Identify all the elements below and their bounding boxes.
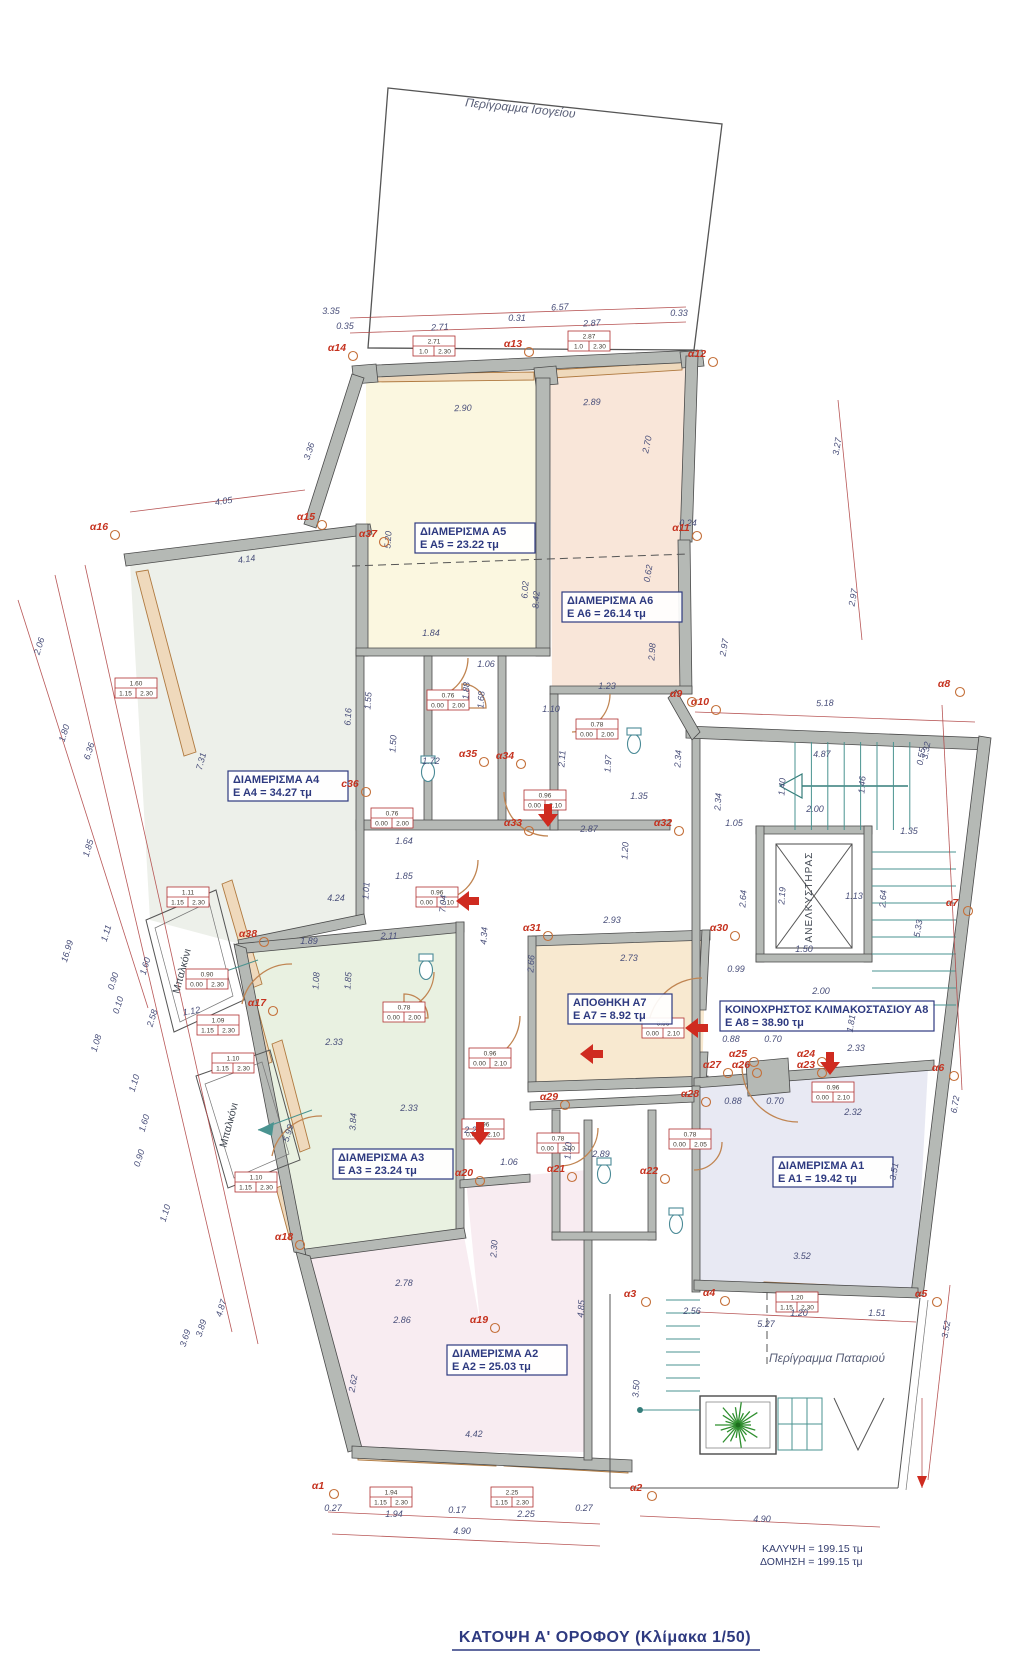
point-marker-label: α25 (729, 1048, 747, 1060)
dimension-text: 2.87 (582, 318, 602, 329)
dimension-text: 2.11 (380, 931, 398, 941)
dimension-text: 0.99 (727, 964, 745, 974)
dimension-text: 4.87 (813, 749, 832, 760)
page-title: ΚΑΤΟΨΗ Α' ΟΡΟΦΟΥ (Κλίμακα 1/50) (459, 1629, 751, 1646)
dimension-text: 2.93 (602, 915, 621, 925)
toilet-icon (627, 728, 641, 754)
dimension-text: 1.08 (89, 1033, 104, 1053)
dimension-text: 1.68 (475, 691, 486, 709)
apartment-name: ΚΟΙΝΟΧΡΗΣΤΟΣ ΚΛΙΜΑΚΟΣΤΑΣΙΟΥ Α8 (725, 1004, 928, 1016)
apartment-name: ΔΙΑΜΕΡΙΣΜΑ Α1 (778, 1160, 864, 1172)
point-marker-label: α29 (540, 1091, 558, 1103)
dimension-text: 2.56 (682, 1306, 701, 1316)
apartment-name: ΔΙΑΜΕΡΙΣΜΑ Α5 (420, 526, 506, 538)
dimension-text: 3.52 (940, 1320, 953, 1339)
spec-sill: 1.15 (171, 900, 184, 907)
point-marker-label: α35 (459, 748, 477, 760)
point-marker-label: α17 (248, 997, 267, 1009)
point-marker-label: α23 (797, 1059, 815, 1071)
room-a6 (550, 358, 690, 688)
dimension-text: 4.90 (753, 1514, 771, 1524)
dimension-text: 2.11 (556, 750, 567, 769)
opening-spec-box: 0.760.002.00 (371, 808, 413, 828)
spec-height: 2.00 (601, 732, 614, 739)
dimension-text: 3.52 (793, 1251, 811, 1261)
apartment-label: ΔΙΑΜΕΡΙΣΜΑ Α3Ε Α3 = 23.24 τμ (333, 1149, 453, 1179)
opening-spec-box: 1.941.152.30 (370, 1487, 412, 1507)
apartment-area: Ε Α8 = 38.90 τμ (725, 1017, 804, 1029)
opening-spec-box: 0.960.002.10 (812, 1082, 854, 1102)
dimension-text: 1.51 (868, 1308, 886, 1318)
point-marker-label: α18 (275, 1231, 293, 1243)
dimension-text: 1.08 (310, 972, 321, 990)
dimension-text: 2.86 (392, 1315, 411, 1325)
point-marker-label: α37 (359, 528, 378, 540)
dimension-text: 1.05 (725, 818, 744, 828)
dimension-text: 16.99 (59, 939, 75, 963)
point-marker-label: α5 (915, 1288, 928, 1300)
spec-width: 0.96 (484, 1051, 497, 1058)
point-marker-ring (950, 1072, 959, 1081)
dimension-text: 2.00 (811, 986, 830, 996)
apartment-label: ΔΙΑΜΕΡΙΣΜΑ Α2Ε Α2 = 25.03 τμ (447, 1345, 567, 1375)
apartment-name: ΔΙΑΜΕΡΙΣΜΑ Α3 (338, 1152, 424, 1164)
construction-label: ΔΟΜΗΣΗ = 199.15 τμ (760, 1556, 863, 1568)
dimension-text: 1.40 (776, 778, 787, 796)
dimension-text: 1.50 (795, 944, 813, 954)
spec-width: 1.10 (227, 1056, 240, 1063)
opening-spec-box: 1.101.152.30 (235, 1172, 277, 1192)
opening-spec-box: 0.960.002.10 (469, 1048, 511, 1068)
dimension-text: 6.57 (551, 302, 570, 313)
apartment-name: ΔΙΑΜΕΡΙΣΜΑ Α4 (233, 774, 320, 786)
apartment-label: ΔΙΑΜΕΡΙΣΜΑ Α1Ε Α1 = 19.42 τμ (773, 1157, 893, 1187)
dimension-text: 2.90 (453, 403, 472, 414)
opening-spec-box: 2.711.02.30 (413, 336, 455, 356)
point-marker-ring (480, 758, 489, 767)
spec-height: 2.30 (260, 1185, 273, 1192)
spec-width: 1.94 (385, 1490, 398, 1497)
point-marker-label: α33 (504, 817, 522, 829)
dimension-text: 1.85 (81, 837, 96, 858)
balcony2-label: Μπαλκόνι (217, 1101, 241, 1149)
spec-width: 1.09 (212, 1018, 225, 1025)
spec-sill: 0.00 (387, 1015, 400, 1022)
spec-height: 2.30 (192, 900, 205, 907)
spec-sill: 0.00 (673, 1142, 686, 1149)
spec-sill: 0.00 (473, 1061, 486, 1068)
room-a5 (366, 380, 538, 648)
dimension-text: 2.78 (394, 1278, 413, 1288)
point-marker-label: α3 (624, 1288, 637, 1300)
coverage-label: ΚΑΛΥΨΗ = 199.15 τμ (762, 1543, 863, 1555)
dimension-text: 2.33 (324, 1037, 343, 1047)
dimension-text: 2.66 (525, 955, 536, 974)
point-marker-label: α27 (703, 1059, 722, 1071)
point-marker-ring (661, 1175, 670, 1184)
spec-height: 2.10 (667, 1031, 680, 1038)
dimension-text: 1.35 (900, 826, 919, 836)
dimension-text: 1.06 (500, 1157, 518, 1167)
point-marker-label: α20 (455, 1167, 473, 1179)
point-marker-label: c36 (341, 778, 359, 790)
point-marker-ring (675, 827, 684, 836)
dimension-text: 1.97 (602, 754, 613, 773)
point-marker-ring (721, 1297, 730, 1306)
spec-sill: 1.15 (239, 1185, 252, 1192)
point-marker-ring (111, 531, 120, 540)
spec-height: 2.30 (140, 691, 153, 698)
dimension-text: 0.88 (724, 1096, 742, 1106)
spec-sill: 0.00 (541, 1146, 554, 1153)
dimension-text: 0.27 (324, 1503, 343, 1513)
dimension-text: 4.05 (214, 495, 234, 507)
dimension-text: 2.33 (846, 1043, 865, 1053)
spec-sill: 0.00 (190, 982, 203, 989)
dimension-text: 7.04 (437, 895, 448, 913)
spec-width: 1.60 (130, 681, 143, 688)
apartment-label: ΔΙΑΜΕΡΙΣΜΑ Α6Ε Α6 = 26.14 τμ (562, 592, 682, 622)
dimension-text: 1.11 (99, 924, 113, 943)
dimension-text: 0.27 (575, 1503, 594, 1513)
dimension-text: 0.33 (670, 308, 688, 318)
dimension-text: 2.06 (31, 636, 46, 657)
apartment-label: ΑΠΟΘΗΚΗ Α7Ε Α7 = 8.92 τμ (568, 994, 672, 1024)
point-marker-label: α14 (328, 342, 346, 354)
floor-plan-drawing: Περίγραμμα Ισογείου Περίγραμμα Παταριού … (0, 0, 1024, 1664)
point-marker-ring (956, 688, 965, 697)
dimension-text: 2.64 (877, 890, 888, 909)
dimension-text: 1.94 (385, 1509, 403, 1519)
point-marker-label: α16 (90, 521, 108, 533)
dimension-text: 2.33 (399, 1103, 418, 1113)
dimension-text: 0.88 (722, 1034, 740, 1044)
dimension-text: 1.55 (362, 691, 373, 710)
point-marker-ring (642, 1298, 651, 1307)
dimension-text: 1.85 (395, 871, 414, 881)
elevator-label: ΑΝΕΛΚΥΣΤΗΡΑΣ (804, 852, 815, 943)
dimension-text: 2.30 (488, 1240, 499, 1259)
spec-height: 2.00 (452, 703, 465, 710)
spec-sill: 1.0 (419, 349, 428, 356)
point-marker-ring (349, 352, 358, 361)
dimension-text: 4.42 (465, 1429, 483, 1440)
dimension-text: 4.90 (453, 1526, 471, 1536)
point-marker-label: α11 (672, 522, 690, 534)
spec-sill: 0.00 (528, 803, 541, 810)
dimension-text: 2.00 (805, 804, 824, 814)
spec-height: 2.30 (438, 349, 451, 356)
spec-width: 0.96 (539, 793, 552, 800)
apartment-label: ΔΙΑΜΕΡΙΣΜΑ Α4Ε Α4 = 34.27 τμ (228, 771, 348, 801)
dimension-text: 2.34 (672, 750, 683, 769)
dimension-text: 0.17 (448, 1505, 467, 1515)
apartment-area: Ε Α3 = 23.24 τμ (338, 1165, 417, 1177)
spec-sill: 0.00 (816, 1095, 829, 1102)
dimension-text: 2.89 (591, 1149, 610, 1159)
spec-width: 0.78 (684, 1132, 697, 1139)
dimension-text: 6.72 (949, 1095, 962, 1114)
dimension-text: 0.31 (508, 313, 526, 323)
apartment-name: ΔΙΑΜΕΡΙΣΜΑ Α6 (567, 595, 653, 607)
apartment-area: Ε Α2 = 25.03 τμ (452, 1361, 531, 1373)
spec-width: 0.90 (201, 972, 214, 979)
point-marker-label: α22 (640, 1165, 658, 1177)
point-marker-ring (709, 358, 718, 367)
dimension-text: 3.35 (322, 306, 341, 316)
dimension-text: 1.01 (360, 882, 371, 900)
dimension-text: 3.27 (831, 436, 844, 456)
spec-width: 0.96 (827, 1085, 840, 1092)
dimension-text: 0.90 (106, 971, 121, 991)
apartment-name: ΔΙΑΜΕΡΙΣΜΑ Α2 (452, 1348, 538, 1360)
dimension-text: 2.25 (516, 1509, 536, 1519)
dimension-text: 4.85 (575, 1299, 586, 1318)
spec-height: 2.30 (395, 1500, 408, 1507)
dimension-text: 2.97 (717, 637, 730, 658)
point-marker-label: α12 (688, 348, 706, 360)
spec-sill: 1.15 (374, 1500, 387, 1507)
spec-sill: 1.15 (216, 1066, 229, 1073)
point-marker-ring (318, 521, 327, 530)
apartment-name: ΑΠΟΘΗΚΗ Α7 (573, 997, 647, 1009)
apartment-area: Ε Α1 = 19.42 τμ (778, 1173, 857, 1185)
point-marker-ring (648, 1492, 657, 1501)
opening-spec-box: 0.780.002.05 (669, 1129, 711, 1149)
dimension-text: 2.89 (582, 397, 601, 408)
spec-width: 2.71 (428, 339, 441, 346)
dimension-text: 2.71 (430, 322, 449, 333)
dimension-text: 8.42 (530, 591, 541, 609)
toilet-icon (597, 1158, 611, 1184)
point-marker-label: α6 (932, 1062, 945, 1074)
point-marker-label: α2 (630, 1482, 643, 1494)
spec-width: 0.76 (442, 693, 455, 700)
dimension-text: 1.23 (598, 681, 616, 691)
spec-width: 0.76 (386, 811, 399, 818)
dimension-text: 6.16 (342, 708, 353, 726)
floor-plan-page: Περίγραμμα Ισογείου Περίγραμμα Παταριού … (0, 0, 1024, 1664)
dimension-text: 6.02 (519, 581, 530, 599)
spec-sill: 0.00 (420, 900, 433, 907)
dimension-text: 1.35 (630, 791, 649, 801)
dimension-text: 1.46 (856, 776, 867, 794)
apartment-label: ΔΙΑΜΕΡΙΣΜΑ Α5Ε Α5 = 23.22 τμ (415, 523, 535, 553)
spec-height: 2.05 (694, 1142, 707, 1149)
spec-width: 1.10 (250, 1175, 263, 1182)
spec-sill: 0.00 (375, 821, 388, 828)
apartment-area: Ε Α7 = 8.92 τμ (573, 1010, 646, 1022)
dimension-text: 2.97 (846, 587, 859, 608)
apartment-area: Ε Α4 = 34.27 τμ (233, 787, 312, 799)
dimension-text: 0.70 (766, 1096, 784, 1106)
spec-width: 1.20 (791, 1295, 804, 1302)
opening-spec-box: 1.101.152.30 (212, 1053, 254, 1073)
spec-width: 0.78 (398, 1005, 411, 1012)
point-marker-ring (693, 532, 702, 541)
spec-sill: 1.0 (574, 344, 583, 351)
dimension-text: 0.55 (915, 746, 928, 766)
dimension-text: 1.64 (395, 836, 413, 846)
dimension-text: 1.80 (57, 723, 72, 743)
dimension-text: 2.98 (646, 643, 657, 662)
spec-height: 2.00 (396, 821, 409, 828)
spec-sill: 1.15 (201, 1028, 214, 1035)
spec-height: 2.30 (593, 344, 606, 351)
point-marker-label: α13 (504, 338, 522, 350)
dimension-text: 1.20 (619, 842, 630, 860)
dimension-text: 2.64 (737, 890, 748, 909)
loft-outline-label: Περίγραμμα Παταριού (769, 1351, 885, 1365)
dimension-text: 1.84 (422, 628, 440, 638)
point-marker-label: α38 (239, 928, 257, 940)
dimension-text: 1.72 (422, 756, 440, 766)
point-marker-label: α30 (710, 922, 728, 934)
dimension-text: 1.85 (342, 971, 353, 990)
point-marker-label: α8 (938, 678, 951, 690)
spec-width: 1.11 (182, 890, 195, 897)
point-marker-label: α28 (681, 1088, 699, 1100)
point-marker-label: α31 (523, 922, 541, 934)
dimension-text: 4.34 (478, 927, 489, 945)
dimension-text: 1.60 (137, 1113, 152, 1133)
dimension-text: 0.70 (764, 1034, 782, 1044)
dimension-text: 2.87 (579, 824, 599, 834)
dimension-text: 2.32 (843, 1107, 862, 1117)
spec-width: 2.25 (506, 1490, 519, 1497)
point-marker-label: α7 (946, 897, 960, 909)
dimension-text: 6.36 (82, 741, 97, 761)
point-marker-label: α19 (470, 1314, 488, 1326)
dimension-text: 5.18 (816, 698, 834, 709)
dimension-text: 1.10 (562, 1142, 573, 1160)
dimension-text: 0.90 (132, 1148, 147, 1168)
dimension-text: 3.36 (302, 441, 317, 461)
toilet-icon (669, 1208, 683, 1234)
ground-floor-outline (368, 88, 722, 350)
apartment-area: Ε Α6 = 26.14 τμ (567, 608, 646, 620)
dimension-text: 1.10 (158, 1203, 173, 1223)
spec-width: 0.78 (552, 1136, 565, 1143)
opening-spec-box: 0.780.002.00 (576, 719, 618, 739)
dimension-text: 1.13 (845, 891, 863, 901)
point-marker-label: α1 (312, 1480, 325, 1492)
spec-width: 0.78 (591, 722, 604, 729)
dimension-text: 1.88 (460, 682, 471, 700)
dimension-text: 3.84 (347, 1113, 358, 1131)
spec-height: 2.00 (408, 1015, 421, 1022)
point-marker-ring (330, 1490, 339, 1499)
spec-height: 2.10 (494, 1061, 507, 1068)
dimension-text: 2.19 (776, 887, 787, 906)
point-marker-ring (933, 1298, 942, 1307)
spec-height: 2.30 (237, 1066, 250, 1073)
dimension-text: 1.06 (477, 659, 495, 669)
dimension-text: 3.50 (630, 1380, 641, 1398)
opening-spec-box: 2.251.152.30 (491, 1487, 533, 1507)
spec-width: 2.87 (583, 334, 596, 341)
point-marker-ring (731, 932, 740, 941)
toilet-icon (419, 954, 433, 980)
dimension-text: 1.89 (300, 936, 318, 946)
dimension-text: 5.33 (912, 919, 925, 938)
dimension-text: 0.10 (111, 995, 126, 1015)
dimension-text: 1.20 (790, 1308, 808, 1318)
point-marker-label: α32 (654, 817, 672, 829)
opening-spec-box: 0.900.002.30 (186, 969, 228, 989)
spec-sill: 1.15 (119, 691, 132, 698)
point-marker-label: α4 (703, 1287, 716, 1299)
spec-sill: 0.00 (431, 703, 444, 710)
spec-height: 2.30 (211, 982, 224, 989)
opening-spec-box: 1.601.152.30 (115, 678, 157, 698)
dimension-text: 4.24 (327, 893, 345, 903)
point-marker-label: α9 (670, 688, 683, 700)
dimension-text: 2.34 (712, 793, 723, 812)
dimension-text: 1.50 (387, 735, 398, 753)
point-marker-label: α34 (496, 750, 514, 762)
spec-height: 2.30 (222, 1028, 235, 1035)
dimension-text: 0.35 (336, 321, 355, 331)
dimension-text: 5.27 (757, 1319, 776, 1329)
point-marker-label: α21 (547, 1163, 565, 1175)
opening-spec-box: 2.871.02.30 (568, 331, 610, 351)
dimension-text: 1.60 (138, 956, 153, 976)
apartment-label: ΚΟΙΝΟΧΡΗΣΤΟΣ ΚΛΙΜΑΚΟΣΤΑΣΙΟΥ Α8Ε Α8 = 38.… (720, 1001, 934, 1031)
room-a4 (130, 530, 362, 944)
spec-sill: 0.00 (646, 1031, 659, 1038)
dimension-text: 2.73 (619, 953, 638, 963)
dimension-text: 3.69 (178, 1328, 193, 1348)
spec-sill: 0.00 (580, 732, 593, 739)
spec-sill: 1.15 (495, 1500, 508, 1507)
spec-height: 2.10 (837, 1095, 850, 1102)
dimension-text: 2.58 (144, 1008, 159, 1029)
dimension-text: 1.10 (127, 1073, 142, 1093)
opening-spec-box: 1.091.152.30 (197, 1015, 239, 1035)
point-marker-ring (517, 760, 526, 769)
opening-spec-box: 1.111.152.30 (167, 887, 209, 907)
apartment-area: Ε Α5 = 23.22 τμ (420, 539, 499, 551)
dimension-text: 3.89 (194, 1318, 209, 1338)
opening-spec-box: 0.780.002.00 (383, 1002, 425, 1022)
point-marker-label: α15 (297, 511, 315, 523)
dimension-text: 1.10 (542, 704, 560, 714)
point-marker-label: α26 (732, 1059, 750, 1071)
spec-height: 2.30 (516, 1500, 529, 1507)
